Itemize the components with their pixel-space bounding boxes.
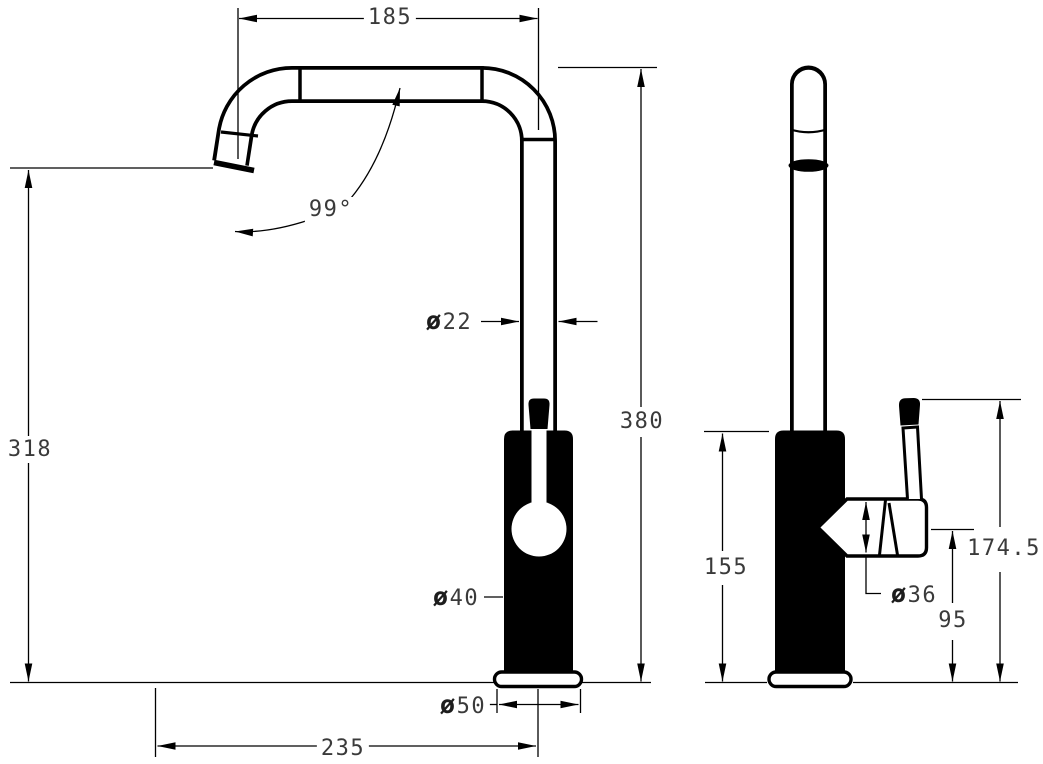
dim-label-body-diameter: ø40 <box>429 582 483 612</box>
dim-label-handle-center-height: 95 <box>934 608 972 634</box>
dim-label-overall-reach: 235 <box>317 736 369 762</box>
front-spout-tube-outer <box>231 84 539 434</box>
front-handle-knob <box>528 399 549 430</box>
dim-label-spout-angle: 99° <box>305 197 357 223</box>
side-spout-opening <box>789 159 829 172</box>
side-lever-shaft <box>903 427 922 499</box>
leader-dia36 <box>866 556 881 594</box>
dim-label-tube-diameter: ø22 <box>422 306 476 336</box>
front-spout-tube-inner <box>231 84 539 434</box>
dim-label-outlet-height: 318 <box>4 437 56 463</box>
dim-label-base-diameter: ø50 <box>436 690 490 720</box>
technical-drawing-canvas: 185 99° ø22 380 318 ø40 ø50 235 155 ø36 … <box>0 0 1043 764</box>
front-view-geometry <box>214 66 582 687</box>
dim-label-overall-height: 380 <box>616 409 668 435</box>
side-base-plate <box>769 672 851 687</box>
dim-label-body-height: 155 <box>700 555 752 581</box>
drawing-svg <box>0 0 1043 764</box>
dim-label-spout-reach: 185 <box>364 5 416 31</box>
side-lever-knob <box>899 398 920 426</box>
front-handle-stem <box>532 427 547 505</box>
dim-99-arc-upper <box>351 88 400 198</box>
side-body <box>775 431 845 678</box>
dim-99-arc-lower <box>235 220 309 232</box>
front-handle-ball <box>512 502 567 557</box>
dim-label-handle-top-height: 174.5 <box>963 536 1043 562</box>
dim-label-cartridge-diameter: ø36 <box>887 579 941 609</box>
front-base-plate <box>495 672 582 687</box>
